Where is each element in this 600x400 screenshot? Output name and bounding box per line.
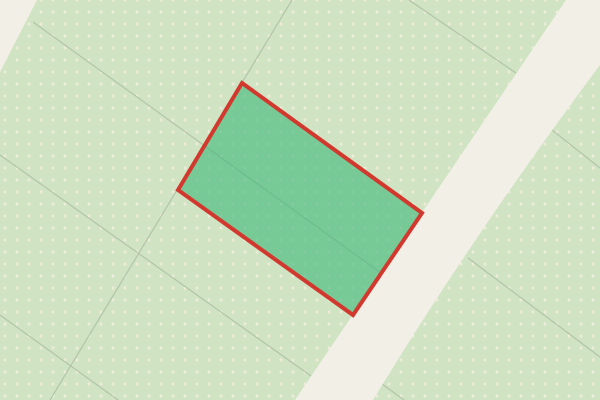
map-canvas[interactable] bbox=[0, 0, 600, 400]
map-viewport[interactable] bbox=[0, 0, 600, 400]
